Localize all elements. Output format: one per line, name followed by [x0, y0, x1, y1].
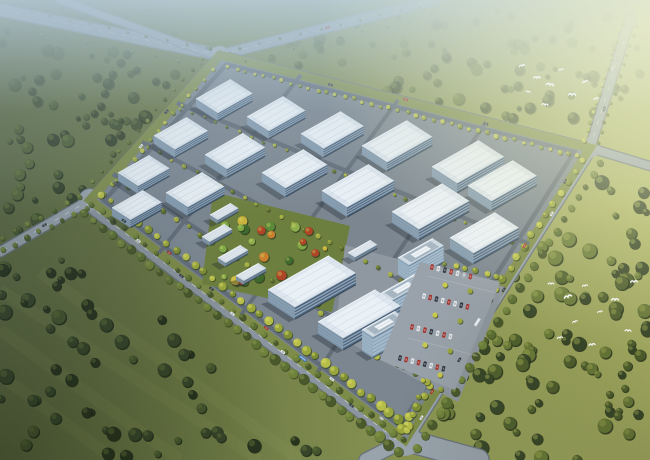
haze-layer	[0, 0, 650, 460]
scene-svg	[0, 0, 650, 460]
bird	[548, 283, 554, 284]
aerial-architectural-rendering	[0, 0, 650, 460]
scene-canvas	[0, 0, 650, 460]
